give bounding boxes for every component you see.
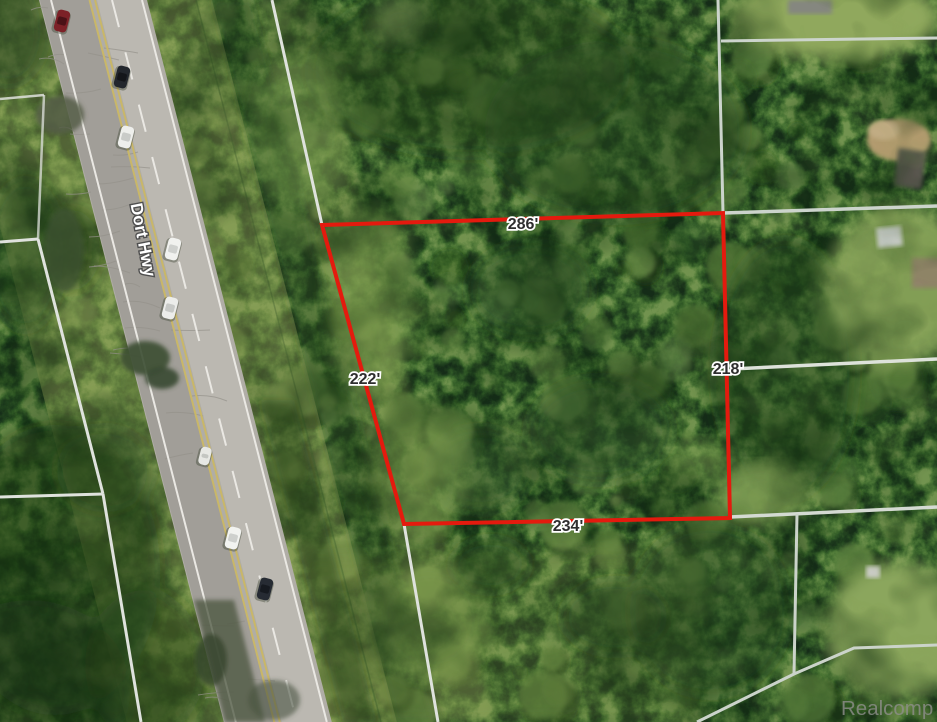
- svg-text:234': 234': [553, 518, 584, 535]
- svg-text:286': 286': [508, 216, 539, 233]
- svg-text:222': 222': [350, 371, 381, 388]
- svg-text:218': 218': [713, 361, 744, 378]
- svg-text:Realcomp: Realcomp: [841, 697, 933, 720]
